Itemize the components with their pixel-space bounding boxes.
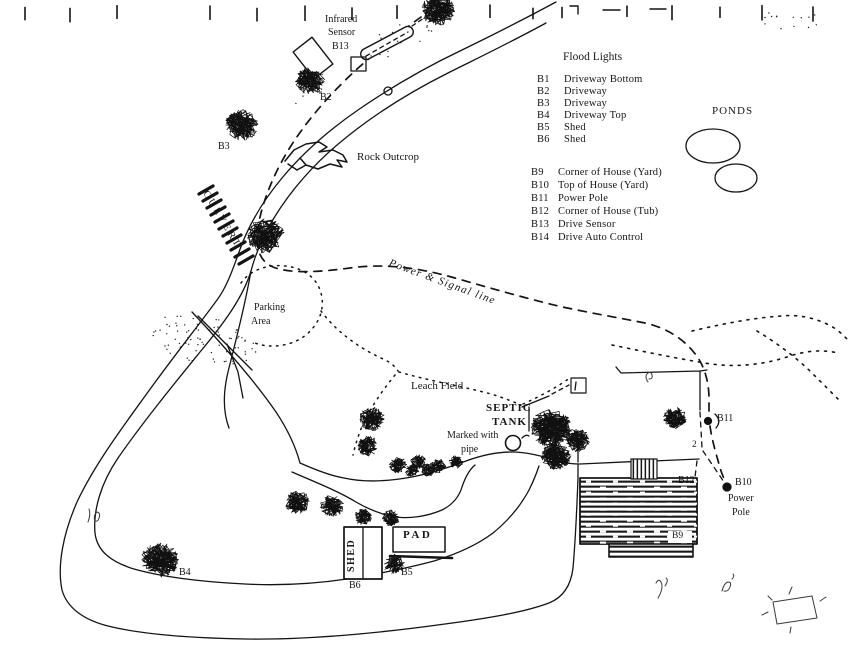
stipple-dot xyxy=(387,56,388,57)
tree-scribble xyxy=(382,510,399,526)
b10-power-pole-label: Pole xyxy=(732,508,750,518)
legend-item: B2Driveway xyxy=(537,86,607,97)
stipple-dot xyxy=(184,324,185,325)
stipple-dot xyxy=(241,337,242,338)
culvert-label: CULVERT xyxy=(200,189,243,251)
tree-scribble xyxy=(358,436,377,456)
legend-item-label: Driveway Top xyxy=(564,110,626,121)
tree-scribble xyxy=(565,430,590,452)
stipple-dot xyxy=(166,324,167,325)
stipple-dot xyxy=(225,361,226,362)
infrared-sensor-label: Sensor xyxy=(328,27,355,38)
road-north-of-pad xyxy=(292,465,475,518)
stipple-dot xyxy=(168,345,169,346)
stipple-dot xyxy=(155,330,156,331)
stipple-dot xyxy=(197,344,198,345)
stipple-dot xyxy=(370,55,371,56)
marked-with-pipe-label: Marked with xyxy=(447,431,498,441)
legend-item: B1Driveway Bottom xyxy=(537,74,643,85)
stipple-dot xyxy=(192,360,193,361)
stipple-dot xyxy=(180,346,181,347)
ruler-dash xyxy=(570,6,666,14)
point-label-b2: B2 xyxy=(320,93,332,103)
marked-with-pipe-label: pipe xyxy=(461,445,478,455)
septic-diagonal-dashed xyxy=(552,385,569,394)
legend-item: B14Drive Auto Control xyxy=(531,232,643,243)
stipple-dot xyxy=(808,27,809,28)
legend-item-id: B13 xyxy=(531,219,558,230)
pencil-mark xyxy=(722,574,734,591)
stipple-dot xyxy=(188,360,189,361)
stipple-dot xyxy=(216,319,217,320)
shed-label: SHED xyxy=(347,539,357,572)
stipple-dot xyxy=(245,351,246,352)
stipple-dot xyxy=(186,331,187,332)
stipple-dot xyxy=(764,17,765,18)
legend-item-id: B2 xyxy=(537,86,564,97)
point-label-b6: B6 xyxy=(349,581,361,591)
stipple-dot xyxy=(213,358,214,359)
infrared-sensor-label: B13 xyxy=(332,41,349,52)
stipple-dot xyxy=(179,343,180,344)
stipple-dot xyxy=(169,326,170,327)
house-deck xyxy=(631,459,657,479)
tree-scribble xyxy=(405,465,419,477)
stipple-dot xyxy=(246,360,247,361)
rock-outcrop-shape xyxy=(285,142,347,170)
stipple-dot xyxy=(398,43,399,44)
legend-item: B4Driveway Top xyxy=(537,110,626,121)
tree-scribble xyxy=(389,457,407,473)
stipple-dot xyxy=(177,316,178,317)
culvert-hatch xyxy=(239,256,253,264)
legend-item-id: B14 xyxy=(531,232,558,243)
stipple-dot xyxy=(197,337,198,338)
legend-item-id: B3 xyxy=(537,98,564,109)
legend-item-label: Shed xyxy=(564,134,586,145)
pad-label: PAD xyxy=(403,530,432,541)
stipple-dot xyxy=(219,334,220,335)
point-label-b3: B3 xyxy=(218,142,230,152)
point-label-b4: B4 xyxy=(179,568,191,578)
legend-item: B9Corner of House (Yard) xyxy=(531,167,662,178)
legend-item: B6Shed xyxy=(537,134,586,145)
stipple-dot xyxy=(187,337,188,338)
stipple-dot xyxy=(177,330,178,331)
point-label-b12: B12 xyxy=(678,476,695,486)
tree-scribble xyxy=(360,407,384,430)
stipple-dot xyxy=(764,23,765,24)
stipple-dot xyxy=(397,41,398,42)
stipple-dot xyxy=(238,336,239,337)
point-label-b5: B5 xyxy=(401,568,413,578)
stipple-dot xyxy=(218,331,219,332)
stipple-dot xyxy=(198,316,199,317)
stipple-dot xyxy=(251,348,252,349)
legend-item: B12Corner of House (Tub) xyxy=(531,206,658,217)
legend-item-id: B1 xyxy=(537,74,564,85)
septic-tank-label: TANK xyxy=(492,417,527,428)
stipple-dot xyxy=(176,325,177,326)
stipple-dot xyxy=(213,327,214,328)
stipple-dot xyxy=(187,358,188,359)
stipple-dot xyxy=(188,330,189,331)
legend-item-id: B5 xyxy=(537,122,564,133)
stipple-dot xyxy=(231,338,232,339)
stipple-dot xyxy=(776,16,777,17)
legend-item-id: B11 xyxy=(531,193,558,204)
road-fork-branch xyxy=(224,271,251,428)
dotted-trail xyxy=(757,331,838,399)
stipple-dot xyxy=(808,17,809,18)
stipple-dot xyxy=(379,54,380,55)
stipple-dot xyxy=(175,339,176,340)
stipple-dot xyxy=(175,323,176,324)
stipple-dot xyxy=(235,332,236,333)
stipple-dot xyxy=(217,326,218,327)
legend-item-id: B6 xyxy=(537,134,564,145)
tree-scribble xyxy=(531,410,571,447)
ponds-label: PONDS xyxy=(712,106,753,117)
stipple-dot xyxy=(793,26,794,27)
parking-area-label: Area xyxy=(251,317,270,327)
b10-point xyxy=(723,483,731,491)
stipple-dot xyxy=(153,331,154,332)
stipple-dot xyxy=(379,34,380,35)
pencil-mark xyxy=(88,509,100,522)
stipple-dot xyxy=(195,350,196,351)
stipple-dot xyxy=(232,363,233,364)
stipple-dot xyxy=(801,17,802,18)
stipple-dot xyxy=(214,361,215,362)
pencil-sketch-rect xyxy=(762,587,826,633)
legend-item: B10Top of House (Yard) xyxy=(531,180,648,191)
stipple-dot xyxy=(387,51,388,52)
stipple-dot xyxy=(814,14,815,15)
stipple-dot xyxy=(238,347,239,348)
stipple-dot xyxy=(201,342,202,343)
stipple-dot xyxy=(419,41,420,42)
stipple-dot xyxy=(203,344,204,345)
tree-scribble xyxy=(422,0,455,25)
stipple-dot xyxy=(196,328,197,329)
survey-square-mark xyxy=(575,382,576,390)
parking-area-label: Parking xyxy=(254,303,285,313)
infrared-sensor-label: Infrared xyxy=(325,14,357,25)
stipple-dot xyxy=(303,92,304,93)
stipple-dot xyxy=(219,345,220,346)
stipple-dot xyxy=(198,329,199,330)
stipple-dot xyxy=(190,339,191,340)
survey-square xyxy=(571,378,586,393)
stipple-dot xyxy=(229,338,230,339)
point-label-b10: B10 xyxy=(735,478,752,488)
stipple-dot xyxy=(816,24,817,25)
yard-boundary xyxy=(578,367,707,462)
legend-item: B3Driveway xyxy=(537,98,607,109)
stipple-dot xyxy=(321,89,322,90)
septic-pipe-circle xyxy=(506,436,521,451)
culvert-hatch xyxy=(235,249,249,257)
b10-power-pole-label: Power xyxy=(728,494,754,504)
stipple-dot xyxy=(164,317,165,318)
tree-scribble xyxy=(422,464,435,476)
pond-small xyxy=(715,164,757,192)
stipple-dot xyxy=(235,347,236,348)
legend-item-id: B12 xyxy=(531,206,558,217)
stipple-dot xyxy=(196,356,197,357)
legend-item-label: Driveway xyxy=(564,86,607,97)
stipple-dot xyxy=(164,345,165,346)
tree-scribble xyxy=(286,491,309,513)
stipple-dot xyxy=(426,26,427,27)
power-signal-line xyxy=(710,426,726,484)
point-label-b11: B11 xyxy=(717,414,733,424)
dotted-path xyxy=(321,311,398,371)
stipple-dot xyxy=(180,316,181,317)
stipple-dot xyxy=(431,30,432,31)
tree-scribble xyxy=(247,219,284,253)
pond-large xyxy=(686,129,740,163)
legend-item-label: Driveway xyxy=(564,98,607,109)
legend-item: B13Drive Sensor xyxy=(531,219,616,230)
stipple-dot xyxy=(227,345,228,346)
stipple-dot xyxy=(188,344,189,345)
point-label-b9: B9 xyxy=(671,532,684,542)
legend-item-label: Corner of House (Tub) xyxy=(558,206,658,217)
stipple-dot xyxy=(166,349,167,350)
legend-item-id: B10 xyxy=(531,180,558,191)
stipple-dot xyxy=(312,91,313,92)
stipple-dot xyxy=(200,321,201,322)
stipple-dot xyxy=(166,333,167,334)
legend-item-label: Driveway Bottom xyxy=(564,74,643,85)
tree-scribble xyxy=(356,509,372,524)
leach-field-label: Leach Field xyxy=(411,381,463,392)
road-fork-branch xyxy=(192,312,300,463)
legend-item: B11Power Pole xyxy=(531,193,608,204)
legend-title: Flood Lights xyxy=(563,52,622,64)
stipple-dot xyxy=(226,351,227,352)
stipple-dot xyxy=(218,319,219,320)
stipple-dot xyxy=(245,354,246,355)
stipple-dot xyxy=(211,352,212,353)
legend-item-label: Drive Auto Control xyxy=(558,232,643,243)
stipple-dot xyxy=(771,16,772,17)
septic-pipe-tick xyxy=(522,435,529,438)
pencil-mark xyxy=(656,578,667,598)
site-plan-drawing: CULVERT xyxy=(0,0,848,645)
stipple-dot xyxy=(780,28,781,29)
stipple-dot xyxy=(232,361,233,362)
stipple-dot xyxy=(193,318,194,319)
stipple-dot xyxy=(231,353,232,354)
legend-item-label: Shed xyxy=(564,122,586,133)
stipple-dot xyxy=(399,24,400,25)
stipple-dot xyxy=(197,324,198,325)
site-plan-page: CULVERT Infrared Sensor B13 B2 B3 Rock O… xyxy=(0,0,848,645)
stipple-dot xyxy=(244,340,245,341)
yard-measure-mark: 2 xyxy=(692,441,697,451)
stipple-dot xyxy=(295,103,296,104)
legend-item-id: B4 xyxy=(537,110,564,121)
legend-item-label: Drive Sensor xyxy=(558,219,616,230)
stipple-dot xyxy=(237,337,238,338)
stipple-dot xyxy=(236,329,237,330)
stipple-dot xyxy=(153,335,154,336)
stipple-dot xyxy=(159,329,160,330)
stipple-dot xyxy=(428,30,429,31)
stipple-dot xyxy=(170,353,171,354)
stipple-dot xyxy=(310,87,311,88)
dotted-trail xyxy=(612,345,838,365)
stipple-dot xyxy=(209,329,210,330)
stipple-dot xyxy=(199,339,200,340)
tree-scribble xyxy=(226,110,258,141)
stipple-dot xyxy=(185,343,186,344)
tree-scribble xyxy=(541,442,571,469)
stipple-dot xyxy=(255,351,256,352)
stipple-dot xyxy=(400,42,401,43)
dotted-trail xyxy=(692,316,848,340)
stipple-dot xyxy=(253,343,254,344)
legend-item-label: Power Pole xyxy=(558,193,608,204)
legend-item-label: Corner of House (Yard) xyxy=(558,167,662,178)
septic-tank-label: SEPTIC xyxy=(486,403,532,414)
stipple-dot xyxy=(380,38,381,39)
b11-point xyxy=(705,418,712,425)
house-extension xyxy=(609,544,693,557)
stipple-dot xyxy=(427,25,428,26)
stipple-dot xyxy=(793,17,794,18)
legend-item-id: B9 xyxy=(531,167,558,178)
stipple-dot xyxy=(768,12,769,13)
tree-scribble xyxy=(664,407,687,428)
stipple-dot xyxy=(392,32,393,33)
legend-item: B5Shed xyxy=(537,122,586,133)
stipple-dot xyxy=(224,361,225,362)
rock-outcrop-label: Rock Outcrop xyxy=(357,152,419,163)
tree-scribble xyxy=(320,496,343,517)
legend-item-label: Top of House (Yard) xyxy=(558,180,648,191)
pencil-mark xyxy=(646,372,652,382)
stipple-dot xyxy=(302,95,303,96)
